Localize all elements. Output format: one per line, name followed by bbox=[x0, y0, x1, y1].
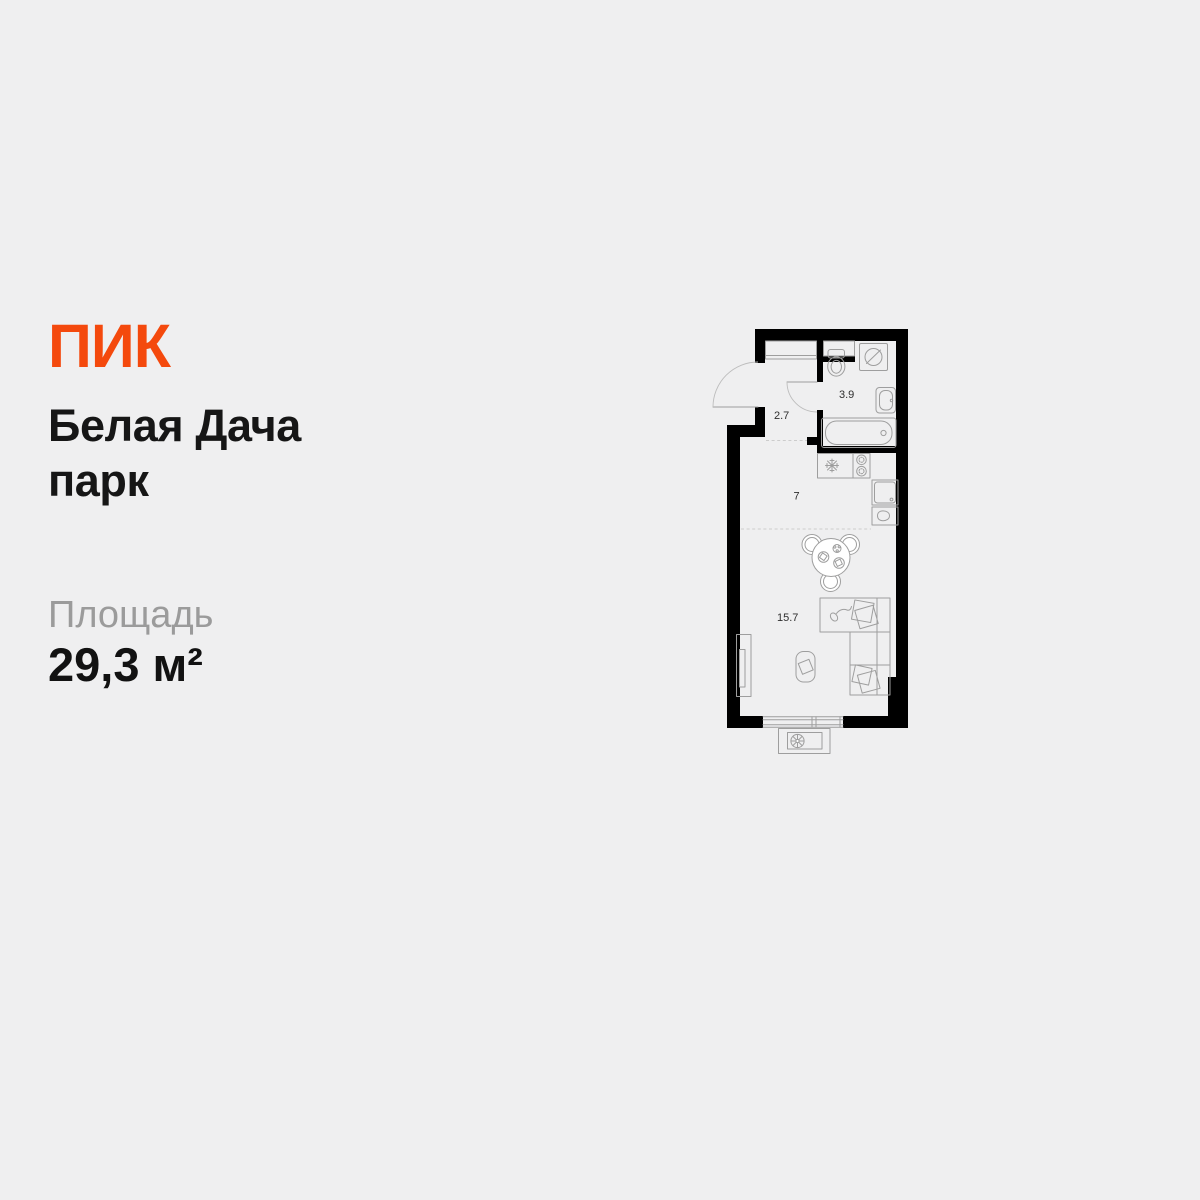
window-icon bbox=[763, 717, 843, 728]
desk-icon bbox=[820, 598, 890, 632]
kettle-icon bbox=[872, 507, 898, 525]
washing-machine-icon bbox=[860, 344, 888, 371]
floor-plan: 2.7 3.9 7 15.7 bbox=[705, 320, 925, 765]
bed-icon bbox=[850, 598, 890, 695]
papers-icon bbox=[855, 605, 879, 629]
room-label-kitchen: 7 bbox=[794, 491, 800, 503]
counter-sink-icon bbox=[872, 480, 898, 505]
room-label-bathroom: 3.9 bbox=[839, 389, 854, 401]
pik-logo: ПИК bbox=[48, 316, 170, 377]
toilet-icon bbox=[828, 350, 845, 377]
area-label: Площадь bbox=[48, 593, 213, 637]
project-title-line1: Белая Дача bbox=[48, 398, 301, 453]
area-value: 29,3 м² bbox=[48, 638, 203, 692]
pouf-icon bbox=[796, 652, 815, 683]
room-label-living: 15.7 bbox=[777, 612, 798, 624]
project-title: Белая Дача парк bbox=[48, 398, 301, 508]
bathroom-door-icon bbox=[787, 382, 817, 412]
pillow-icon bbox=[852, 665, 872, 685]
dining-table-icon bbox=[802, 535, 860, 592]
bathtub-icon bbox=[822, 418, 897, 448]
stove-burners-icon bbox=[853, 454, 870, 479]
listing-card: ПИК Белая Дача парк Площадь 29,3 м² bbox=[0, 0, 1200, 1200]
wardrobe-icon bbox=[766, 341, 817, 359]
project-title-line2: парк bbox=[48, 453, 301, 508]
kitchen-sink-icon bbox=[818, 454, 854, 479]
bathroom-sink-icon bbox=[876, 388, 896, 414]
entrance-door-icon bbox=[713, 362, 758, 407]
balcony bbox=[779, 729, 831, 754]
room-label-hallway: 2.7 bbox=[774, 410, 789, 422]
